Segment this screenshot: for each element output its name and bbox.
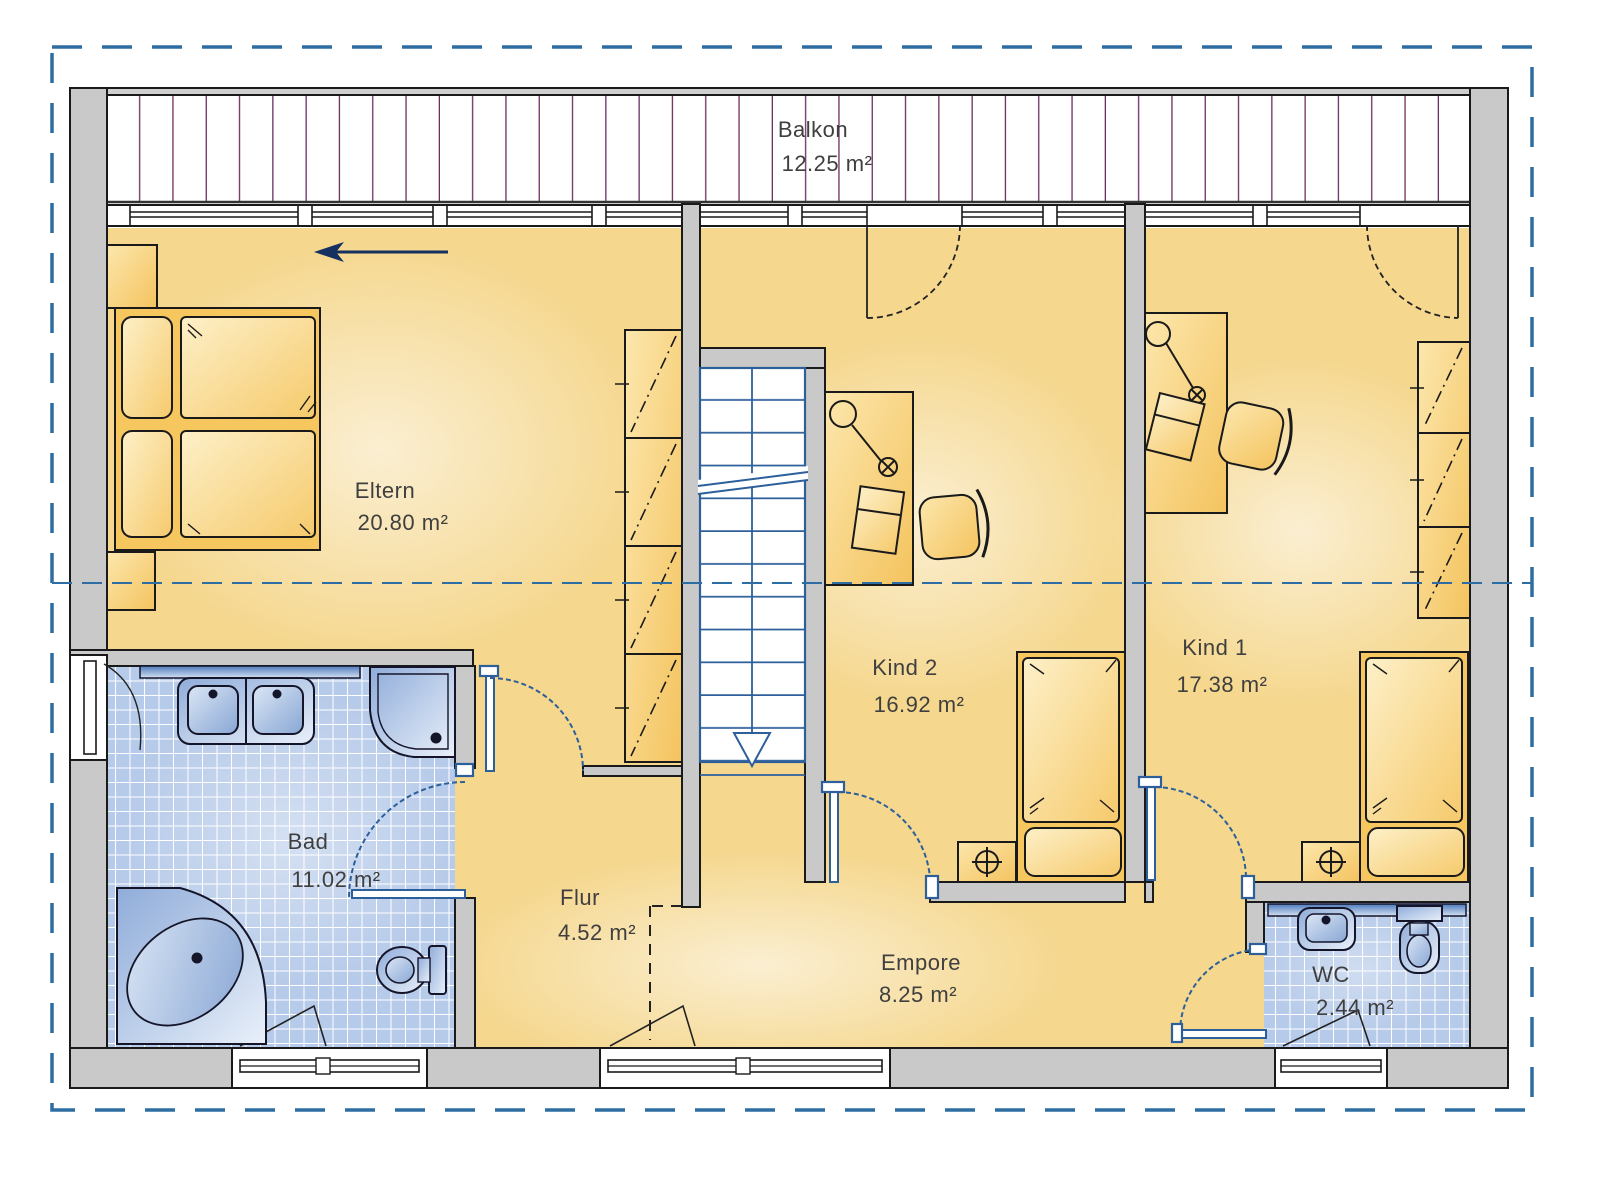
corner-shower <box>370 667 455 757</box>
wall-kind1-bottom-stub <box>1145 882 1153 902</box>
wc-toilet <box>1397 906 1442 973</box>
nightstand-kind1 <box>1302 842 1360 882</box>
door-kind2-leaf <box>830 790 838 882</box>
double-sink-vanity <box>178 678 314 744</box>
label-kind2-name: Kind 2 <box>872 655 937 680</box>
wall-eltern-flur <box>583 766 682 776</box>
bed-kind1 <box>1360 652 1468 882</box>
wall-bad-right-upper <box>455 666 475 768</box>
faucet-icon <box>193 954 202 963</box>
faucet-icon <box>274 691 281 698</box>
label-kind1-area: 17.38 m² <box>1177 672 1268 697</box>
label-kind2-area: 16.92 m² <box>874 692 965 717</box>
label-eltern-name: Eltern <box>355 478 415 503</box>
floor-plan-page: Balkon 12.25 m² Eltern 20.80 m² Kind 2 1… <box>0 0 1600 1188</box>
door-kind1-cap <box>1139 777 1161 787</box>
wall-eltern-kind2 <box>682 204 700 907</box>
faucet-icon <box>210 691 217 698</box>
bed-kind2 <box>1017 652 1125 882</box>
door-wc-hinge <box>1172 1024 1182 1042</box>
wall-kind2-bottom <box>930 882 1125 902</box>
double-bed-eltern <box>115 308 320 550</box>
staircase <box>698 368 808 775</box>
door-kind2-jamb <box>926 876 938 898</box>
door-kind1-leaf <box>1147 785 1155 880</box>
faucet-icon <box>1323 917 1330 924</box>
toilet-bad <box>377 946 446 994</box>
label-bad-name: Bad <box>288 829 329 854</box>
wall-bad-top <box>70 650 473 666</box>
door-eltern-leaf <box>486 674 494 771</box>
door-bad-jamb-top <box>456 764 473 776</box>
label-bad-area: 11.02 m² <box>291 867 380 892</box>
nightstand-eltern-top <box>107 245 157 308</box>
label-balkon-name: Balkon <box>778 117 848 142</box>
door-kind2-cap <box>822 782 844 792</box>
label-wc-name: WC <box>1312 962 1350 987</box>
room-balkon <box>107 88 1470 202</box>
wc-sink <box>1298 908 1355 950</box>
glazed-band <box>107 204 1470 227</box>
wardrobe-kind1 <box>1410 342 1470 618</box>
label-flur-name: Flur <box>560 885 600 910</box>
label-eltern-area: 20.80 m² <box>358 510 449 535</box>
door-kind1-jamb <box>1242 876 1254 898</box>
wall-stair-right <box>805 368 825 882</box>
desk-pad-kind2 <box>852 486 904 554</box>
label-empore-area: 8.25 m² <box>879 982 957 1007</box>
wall-outer-right <box>1470 88 1508 1088</box>
wardrobe-eltern <box>615 330 682 762</box>
wall-outer-left <box>70 88 107 1088</box>
door-wc-leaf <box>1180 1030 1266 1038</box>
floor-plan-drawing: Balkon 12.25 m² Eltern 20.80 m² Kind 2 1… <box>0 0 1600 1188</box>
label-empore-name: Empore <box>881 950 961 975</box>
wall-wc-top <box>1246 882 1470 902</box>
door-wc-jamb <box>1250 944 1266 954</box>
wall-stair-top <box>700 348 825 368</box>
label-kind1-name: Kind 1 <box>1182 635 1247 660</box>
nightstand-kind2 <box>958 842 1016 882</box>
balcony-railing-wall <box>107 88 1470 95</box>
vanity-counter <box>140 666 360 678</box>
balcony-deck <box>107 95 1470 202</box>
wall-bad-right-lower <box>455 898 475 1048</box>
drain-icon <box>432 734 441 743</box>
label-wc-area: 2.44 m² <box>1316 995 1394 1020</box>
nightstand-eltern-bottom <box>107 552 155 610</box>
label-flur-area: 4.52 m² <box>558 920 636 945</box>
label-balkon-area: 12.25 m² <box>782 151 873 176</box>
door-eltern-cap <box>480 666 498 676</box>
